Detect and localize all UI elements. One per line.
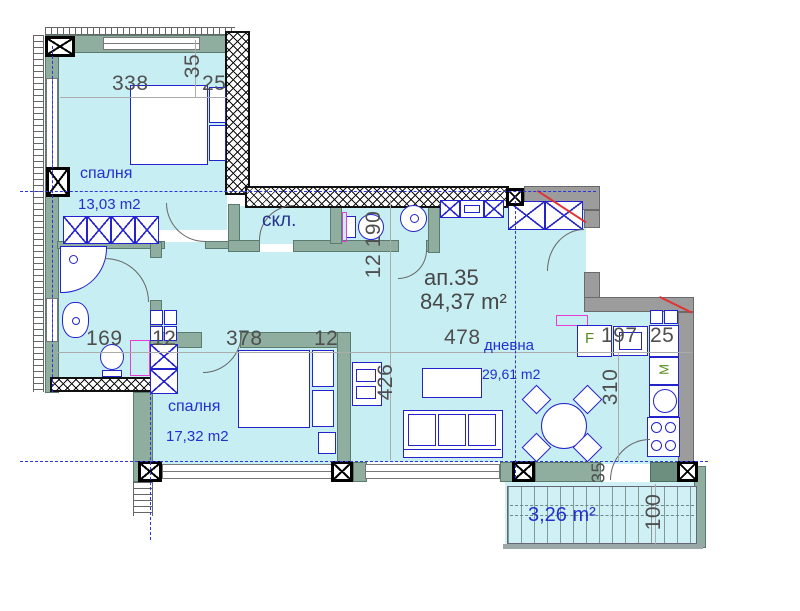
room-label-storage: скл. <box>262 210 296 232</box>
shower-drain <box>69 255 78 264</box>
wall-entry-right-b <box>584 272 600 300</box>
bed-body <box>238 350 310 428</box>
dim-label-25-kitchen: 25 <box>650 324 674 348</box>
window-living-bottom <box>365 464 500 479</box>
tv-cabinet-shelf <box>356 369 376 382</box>
tv-cabinet-shelf <box>356 386 376 399</box>
sink-bathroom <box>62 302 89 338</box>
dim-label-25-top: 25 <box>202 72 226 96</box>
dim-label-190: 190 <box>362 207 386 251</box>
center-line <box>20 191 596 192</box>
sofa-cushion <box>468 414 496 446</box>
column <box>331 461 353 482</box>
wardrobe-cell <box>63 216 87 244</box>
dim-line <box>60 97 228 98</box>
dim-line <box>57 352 692 353</box>
wardrobe-cell <box>87 216 111 244</box>
cabinet-cell <box>650 310 663 324</box>
column <box>46 167 70 197</box>
cabinet-cell <box>150 310 163 325</box>
wardrobe-cell <box>150 369 178 394</box>
dim-label-378: 378 <box>226 327 263 351</box>
shelf-rod <box>464 205 480 213</box>
bed-pillow <box>209 125 226 161</box>
microwave-label: M <box>657 360 672 380</box>
wall-bathroom-right-a <box>150 242 162 258</box>
sofa-cushion <box>438 414 466 446</box>
dim-label-12-bathroom: 12 <box>152 327 176 351</box>
apartment-number: ап.35 <box>424 265 479 291</box>
sink-drain <box>410 214 419 223</box>
area-label-bedroom2: 17,32 m2 <box>166 428 229 445</box>
insulation-strip-top <box>45 27 235 35</box>
wc-door-screen <box>342 212 347 242</box>
insulation-strip-left <box>33 35 44 392</box>
shelf-end <box>484 200 504 218</box>
wardrobe-cell <box>135 216 159 244</box>
dim-label-310: 310 <box>599 364 623 410</box>
fridge-label: F <box>585 330 594 347</box>
room-label-bedroom2: спалня <box>168 398 220 416</box>
center-line <box>150 392 151 540</box>
dim-label-35-balcony: 35 <box>589 459 610 487</box>
coffee-table <box>422 368 482 398</box>
wall-storage-wc-divider <box>330 204 342 244</box>
bed-pillow <box>312 390 334 427</box>
burner <box>651 422 662 433</box>
burner <box>665 440 676 451</box>
shelf-end <box>440 200 460 218</box>
dim-label-12-bedroom2: 12 <box>314 327 338 351</box>
center-line <box>52 46 53 392</box>
toilet-tank <box>346 216 356 238</box>
cabinet-cell <box>664 310 678 324</box>
bedside-stool <box>318 432 336 454</box>
window-bedroom2-bottom <box>162 464 332 479</box>
apartment-area: 84,37 m² <box>420 289 507 315</box>
dim-label-169: 169 <box>86 327 123 351</box>
wall-hatch-bedroom1-right <box>225 31 250 195</box>
sink-wc <box>400 205 427 232</box>
toilet-base <box>102 370 122 377</box>
window-bedroom1-top <box>103 37 200 50</box>
column <box>45 36 75 57</box>
shelf-entry <box>440 200 504 218</box>
column <box>677 461 698 482</box>
dim-line <box>390 200 391 460</box>
cabinet-cell <box>164 310 177 325</box>
stove <box>647 417 680 457</box>
wall-hatch-bathroom-bottom <box>50 377 153 392</box>
balcony-slab-edge <box>503 544 703 549</box>
wall-bottom-seg4 <box>650 462 679 482</box>
dim-label-100: 100 <box>642 491 666 533</box>
door-arc-bedroom1 <box>166 203 205 242</box>
wardrobe-bedroom1 <box>63 216 159 242</box>
dim-label-197: 197 <box>601 324 638 348</box>
dim-label-426: 426 <box>374 359 398 405</box>
room-label-bedroom1: спалня <box>80 165 132 183</box>
bed-pillow <box>312 350 334 387</box>
burner <box>665 422 676 433</box>
shower-screen <box>130 340 150 376</box>
wall-storage-bottom-a <box>228 240 260 252</box>
sink-basin <box>653 389 677 413</box>
wall-entry-right-a <box>584 210 600 228</box>
dim-label-338: 338 <box>112 72 149 96</box>
wardrobe-cell <box>111 216 135 244</box>
bed-bedroom2 <box>238 350 338 430</box>
burner <box>651 440 662 451</box>
dim-label-478: 478 <box>444 326 481 350</box>
wall-kitchen-right <box>678 312 694 466</box>
dim-label-12-wc: 12 <box>362 252 386 280</box>
sink-drain <box>72 317 80 325</box>
sofa <box>403 410 503 458</box>
area-label-balcony: 3,26 m² <box>528 504 596 527</box>
area-label-living: 29,61 m2 <box>482 366 540 382</box>
room-label-living: дневна <box>484 337 534 354</box>
sofa-back <box>404 449 501 450</box>
kitchen-wall-cabinet <box>650 310 678 324</box>
kitchen-sink <box>649 385 679 417</box>
sofa-cushion <box>408 414 436 446</box>
area-label-bedroom1: 13,03 m2 <box>78 196 141 213</box>
floor-plan-canvas: 338 35 25 спалня 13,03 m2 скл. 190 12 ап… <box>0 0 800 611</box>
